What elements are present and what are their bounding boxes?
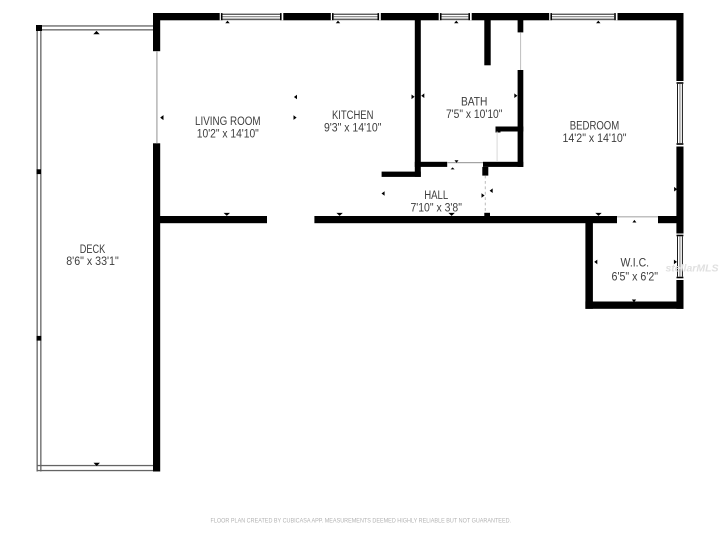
svg-text:14'2" x 14'10": 14'2" x 14'10" bbox=[563, 131, 627, 145]
svg-text:7'10" x 3'8": 7'10" x 3'8" bbox=[410, 201, 462, 215]
svg-text:7'5" x 10'10": 7'5" x 10'10" bbox=[446, 107, 503, 121]
svg-text:FLOOR PLAN CREATED BY CUBICASA: FLOOR PLAN CREATED BY CUBICASA APP. MEAS… bbox=[211, 518, 512, 525]
svg-text:8'6" x 33'1": 8'6" x 33'1" bbox=[66, 254, 119, 268]
svg-text:W.I.C.: W.I.C. bbox=[621, 256, 650, 270]
svg-text:stellarMLS: stellarMLS bbox=[665, 263, 718, 275]
svg-text:10'2" x 14'10": 10'2" x 14'10" bbox=[197, 126, 259, 140]
svg-text:9'3" x 14'10": 9'3" x 14'10" bbox=[324, 120, 382, 134]
svg-text:6'5" x 6'2": 6'5" x 6'2" bbox=[612, 270, 659, 284]
